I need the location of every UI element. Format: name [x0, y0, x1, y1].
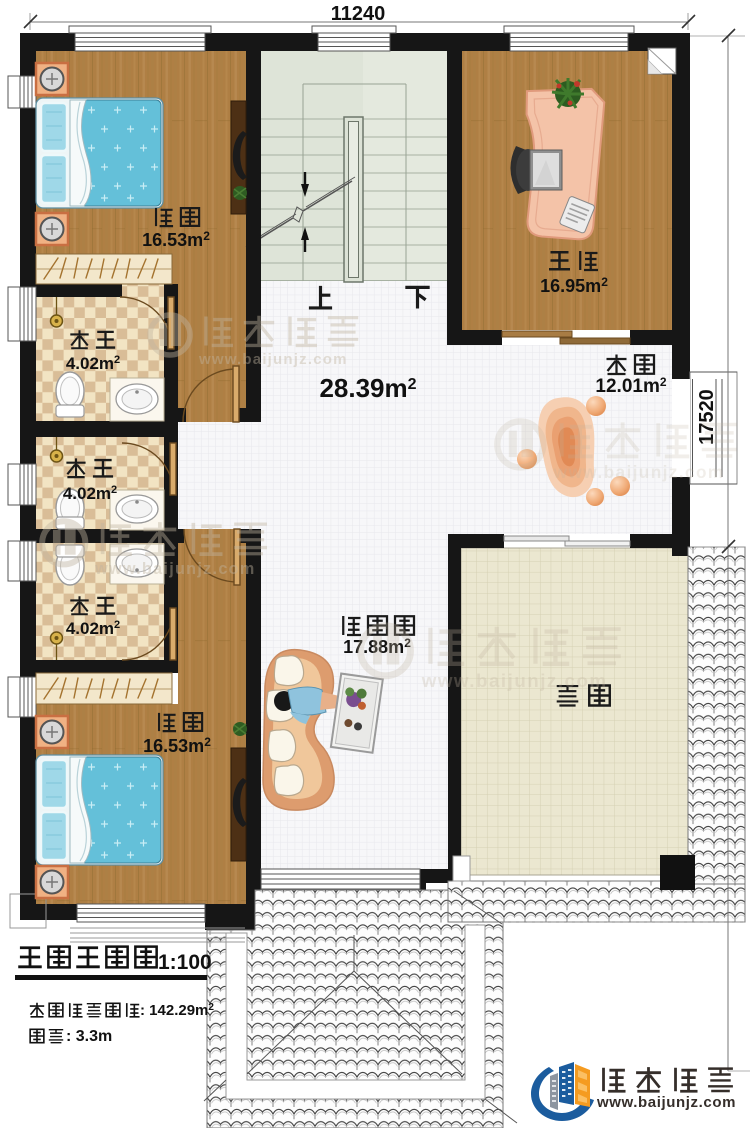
svg-text:17520: 17520 [696, 389, 718, 445]
svg-text:11240: 11240 [331, 3, 386, 25]
svg-text:: 142.29m2: : 142.29m2 [140, 1002, 214, 1019]
svg-text:1:100: 1:100 [158, 951, 212, 974]
svg-text:16.95m2: 16.95m2 [540, 275, 608, 296]
svg-text:12.01m2: 12.01m2 [595, 375, 666, 397]
svg-text:28.39m2: 28.39m2 [319, 373, 416, 403]
svg-text:: 3.3m: : 3.3m [66, 1028, 112, 1045]
svg-text:www.baijunjz.com: www.baijunjz.com [596, 1094, 736, 1111]
svg-text:16.53m2: 16.53m2 [143, 735, 211, 756]
svg-text:4.02m2: 4.02m2 [66, 354, 120, 373]
svg-text:4.02m2: 4.02m2 [66, 619, 120, 638]
svg-text:4.02m2: 4.02m2 [63, 484, 117, 503]
svg-text:16.53m2: 16.53m2 [142, 229, 210, 250]
